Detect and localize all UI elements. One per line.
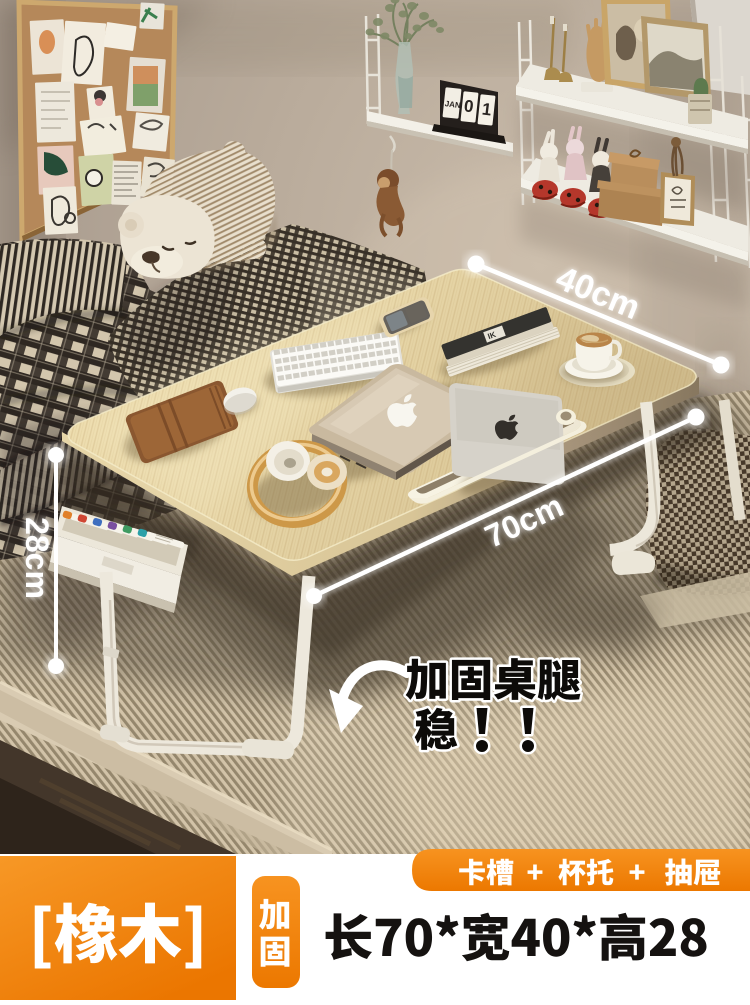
svg-text:28cm: 28cm <box>19 517 55 599</box>
